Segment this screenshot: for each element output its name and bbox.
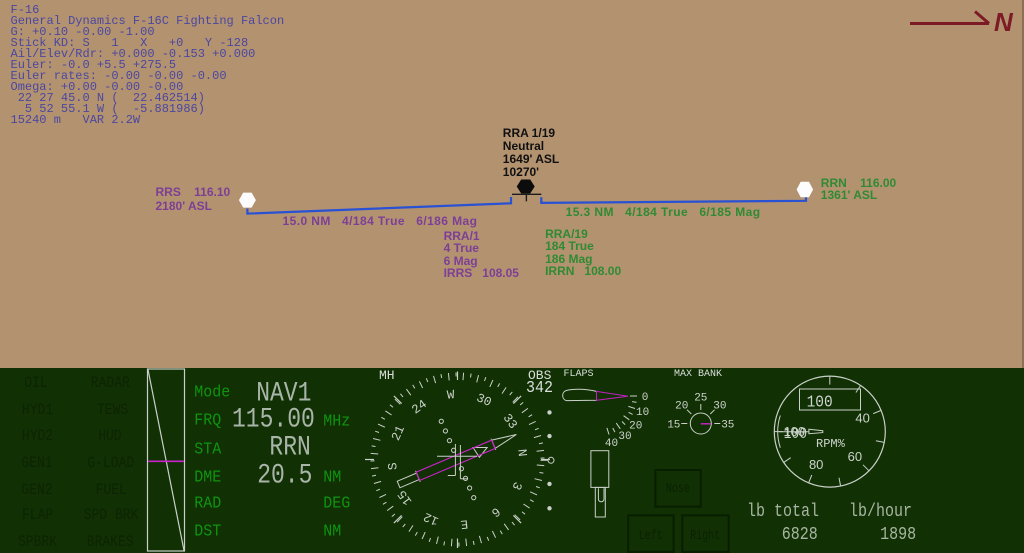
- svg-text:35: 35: [721, 420, 734, 432]
- svg-text:40: 40: [855, 411, 869, 426]
- svg-text:N: N: [514, 448, 529, 457]
- svg-text:15: 15: [667, 420, 680, 432]
- svg-text:30: 30: [474, 391, 493, 410]
- svg-text:60: 60: [848, 449, 862, 464]
- svg-text:40: 40: [605, 438, 618, 450]
- svg-text:24: 24: [409, 397, 429, 417]
- svg-text:20: 20: [675, 400, 688, 412]
- svg-text:6: 6: [488, 504, 502, 520]
- svg-text:33: 33: [500, 411, 520, 431]
- svg-text:30: 30: [713, 400, 726, 412]
- svg-text:80: 80: [809, 457, 823, 472]
- svg-text:W: W: [446, 388, 455, 403]
- svg-text:S: S: [386, 462, 401, 471]
- svg-text:0: 0: [642, 392, 649, 404]
- svg-text:15: 15: [395, 487, 415, 507]
- svg-text:21: 21: [389, 424, 408, 443]
- svg-text:25: 25: [694, 393, 707, 405]
- svg-text:E: E: [460, 516, 469, 531]
- svg-text:10: 10: [636, 407, 649, 419]
- svg-text:12: 12: [422, 509, 441, 528]
- svg-text:3: 3: [509, 479, 525, 492]
- svg-text:30: 30: [618, 431, 631, 443]
